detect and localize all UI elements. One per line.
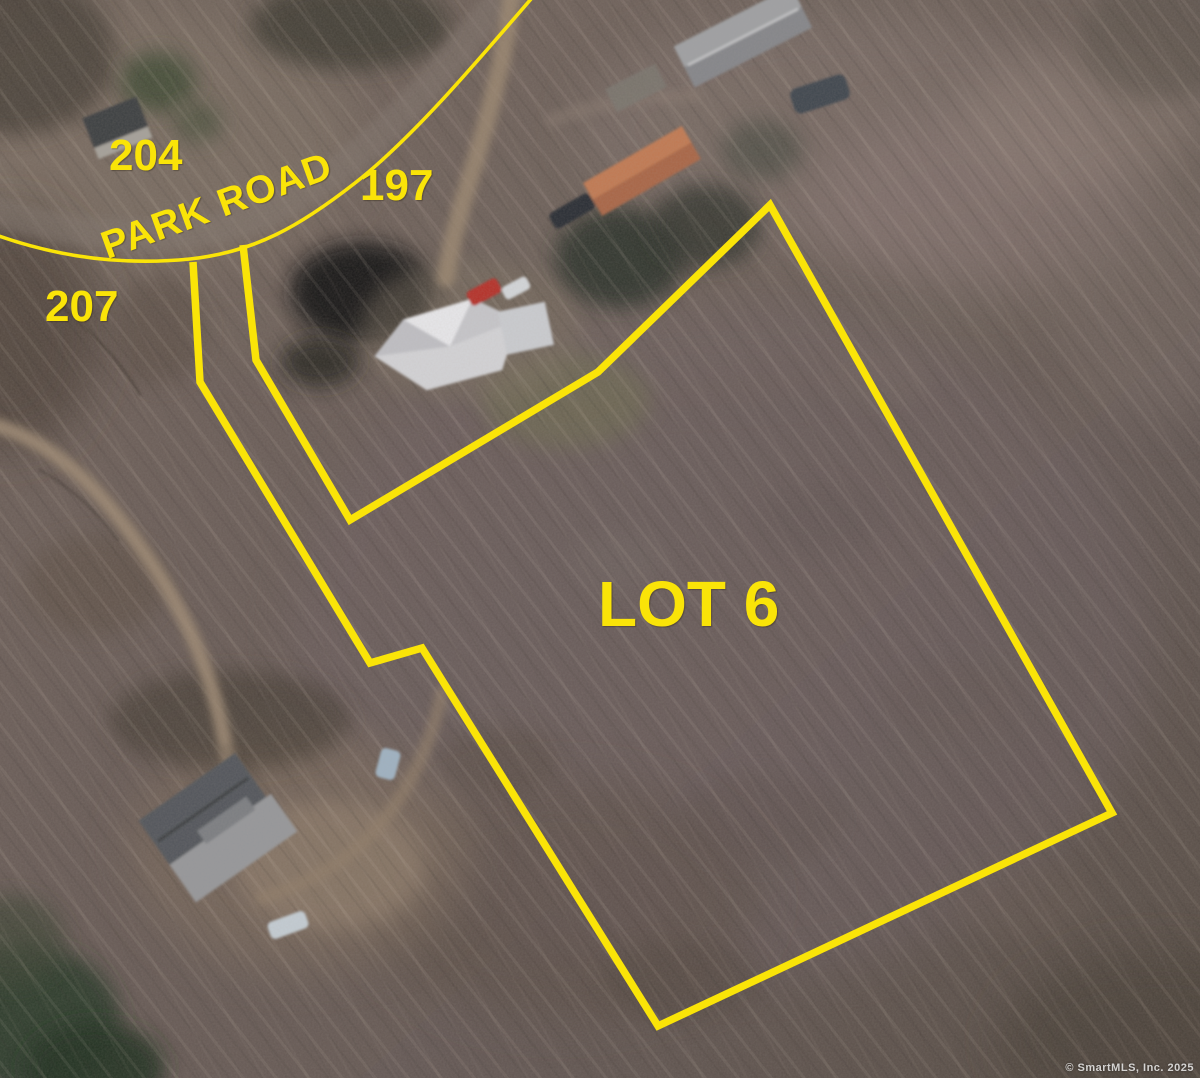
address-label-207: 207 <box>45 285 118 329</box>
copyright-watermark: © SmartMLS, Inc. 2025 <box>1065 1062 1194 1074</box>
lot-name-label: LOT 6 <box>598 572 779 636</box>
road-edge-line <box>0 0 537 261</box>
address-label-204: 204 <box>109 134 182 178</box>
address-label-197: 197 <box>360 164 433 208</box>
aerial-map: 204 197 207 PARK ROAD LOT 6 © SmartMLS, … <box>0 0 1200 1078</box>
